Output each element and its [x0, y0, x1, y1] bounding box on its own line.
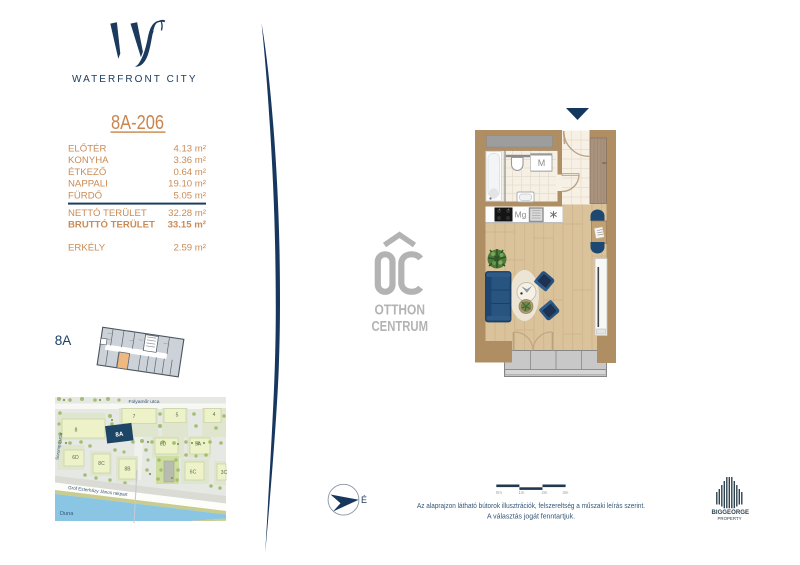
- svg-text:7: 7: [133, 414, 136, 420]
- svg-text:Az alaprajzon látható bútorok: Az alaprajzon látható bútorok illusztrác…: [417, 503, 645, 510]
- svg-text:19.10 m²: 19.10 m²: [168, 179, 207, 190]
- svg-text:ÉTKEZŐ: ÉTKEZŐ: [68, 167, 106, 178]
- svg-text:8A: 8A: [115, 431, 124, 439]
- svg-text:Folyamőr utca: Folyamőr utca: [129, 399, 160, 405]
- svg-text:BIGGEORGE: BIGGEORGE: [712, 509, 750, 516]
- svg-text:0.64 m²: 0.64 m²: [173, 167, 206, 178]
- svg-text:4.13 m²: 4.13 m²: [173, 144, 206, 155]
- svg-text:0m: 0m: [496, 490, 502, 495]
- svg-text:NETTÓ TERÜLET: NETTÓ TERÜLET: [68, 208, 147, 219]
- svg-text:M: M: [538, 158, 546, 168]
- svg-text:ELŐTÉR: ELŐTÉR: [68, 144, 106, 155]
- svg-text:4: 4: [213, 412, 216, 418]
- svg-text:8B: 8B: [124, 467, 131, 473]
- svg-text:2.59 m²: 2.59 m²: [173, 243, 206, 254]
- svg-text:NAPPALI: NAPPALI: [68, 179, 108, 190]
- svg-text:32.28 m²: 32.28 m²: [168, 208, 207, 219]
- svg-text:5.05 m²: 5.05 m²: [173, 190, 206, 201]
- svg-text:ERKÉLY: ERKÉLY: [68, 243, 106, 254]
- svg-text:8: 8: [75, 428, 78, 434]
- svg-text:É: É: [361, 495, 367, 505]
- svg-text:5: 5: [176, 413, 179, 419]
- svg-text:A választás jogát fenntartjuk.: A választás jogát fenntartjuk.: [487, 514, 575, 521]
- svg-text:CENTRUM: CENTRUM: [372, 319, 429, 335]
- svg-text:3C: 3C: [221, 470, 228, 476]
- svg-text:6D: 6D: [160, 442, 167, 448]
- svg-text:OTTHON: OTTHON: [375, 303, 426, 319]
- svg-text:33.15 m²: 33.15 m²: [168, 220, 206, 231]
- svg-text:Duna: Duna: [60, 511, 74, 517]
- svg-text:5A: 5A: [195, 442, 202, 448]
- svg-text:8A-206: 8A-206: [111, 111, 164, 134]
- svg-text:KONYHA: KONYHA: [68, 155, 109, 166]
- svg-text:6D: 6D: [72, 455, 79, 461]
- svg-text:1m: 1m: [519, 490, 525, 495]
- svg-text:2m: 2m: [542, 490, 548, 495]
- svg-text:Mg: Mg: [515, 210, 527, 220]
- svg-text:BRUTTÓ TERÜLET: BRUTTÓ TERÜLET: [68, 219, 155, 231]
- svg-text:3.36 m²: 3.36 m²: [173, 155, 206, 166]
- svg-text:6C: 6C: [190, 470, 197, 476]
- svg-text:3m: 3m: [563, 490, 569, 495]
- svg-text:8A: 8A: [55, 333, 72, 348]
- svg-text:FÜRDŐ: FÜRDŐ: [68, 190, 102, 201]
- svg-text:PROPERTY: PROPERTY: [718, 516, 742, 521]
- svg-text:WATERFRONT CITY: WATERFRONT CITY: [72, 74, 198, 85]
- svg-text:8C: 8C: [98, 461, 105, 467]
